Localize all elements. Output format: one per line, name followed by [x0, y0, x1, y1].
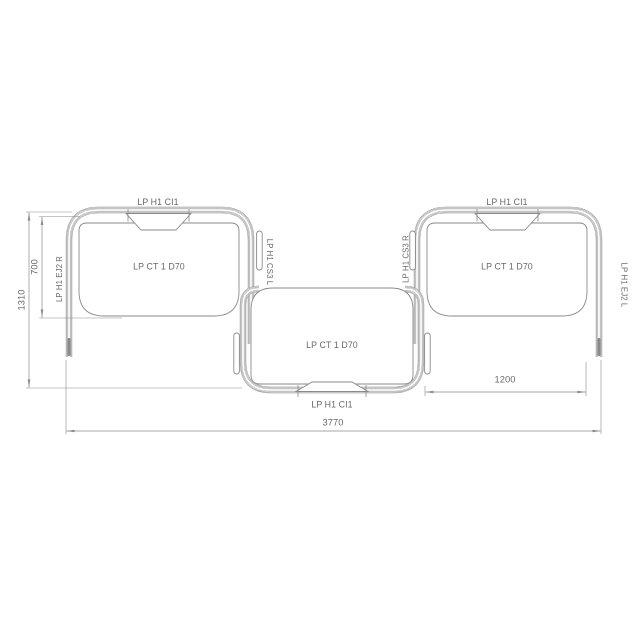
left-unit — [67, 209, 262, 357]
middle-unit-bottom-clip-label: LP H1 CI1 — [311, 400, 352, 410]
drawing-canvas: 1310 700 1200 3770 LP H1 CI1 LP H1 CI1 L… — [0, 0, 642, 642]
dim-value-backrest-height: 700 — [30, 259, 40, 275]
right-unit-outer-side-label: LP H1 EJ2 L — [620, 263, 629, 308]
middle-unit-left-strip — [234, 333, 240, 374]
dim-value-overall-width: 3770 — [322, 418, 343, 428]
right-unit-connector-strip — [410, 231, 416, 270]
technical-drawing: 1310 700 1200 3770 LP H1 CI1 LP H1 CI1 L… — [0, 0, 642, 642]
right-unit — [410, 209, 601, 357]
dim-value-right-opening: 1200 — [494, 375, 515, 385]
middle-unit-right-strip — [425, 333, 431, 374]
left-unit-top-clip-label: LP H1 CI1 — [137, 197, 178, 207]
middle-unit-panel-label: LP CT 1 D70 — [306, 340, 358, 350]
left-unit-leg-foot — [67, 338, 70, 356]
left-unit-inner-side-label: LP H1 CS3 L — [265, 239, 274, 286]
left-unit-connector-strip — [257, 231, 263, 270]
left-unit-panel-label: LP CT 1 D70 — [133, 262, 185, 272]
right-unit-top-clip-label: LP H1 CI1 — [486, 197, 527, 207]
right-unit-leg-foot — [597, 338, 600, 356]
right-unit-panel-label: LP CT 1 D70 — [481, 262, 533, 272]
left-unit-outer-side-label: LP H1 EJ2 R — [55, 256, 64, 302]
right-unit-inner-side-label: LP H1 CS3 R — [402, 235, 411, 283]
dim-value-total-height: 1310 — [17, 289, 27, 310]
middle-unit-panel — [251, 288, 413, 384]
